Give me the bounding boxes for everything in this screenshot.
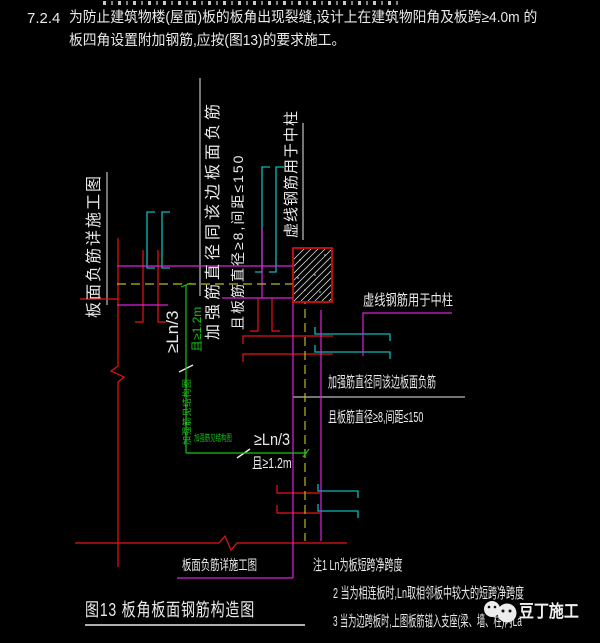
header-line-2: 板四角设置附加钢筋,应按(图13)的要求施工。 (69, 34, 345, 49)
section-number: 7.2.4 (27, 11, 60, 26)
structural-drawing (0, 0, 600, 643)
header-line-1: 为防止建筑物楼(屋面)板的板角出现裂缝,设计上在建筑物阳角及板跨≥4.0m 的 (69, 11, 537, 26)
clipped-text-fragment (103, 1, 398, 5)
label-dim-vertical-extra: 且≥1.2m (191, 307, 203, 352)
watermark-text: 豆丁施工 (519, 603, 579, 620)
label-bottom-caption: 板面负筋详施工图 (182, 558, 257, 572)
magenta-lines (117, 228, 452, 578)
label-reinforce-see-structural-vertical: 加强筋见结构图 (183, 378, 192, 445)
label-left-caption-vertical: 板面负筋详施工图 (87, 174, 103, 318)
watermark: 豆丁施工 (478, 594, 600, 634)
label-reinforce-see-structural: 加强筋见结构图 (194, 434, 232, 443)
label-reinforce-same-dia-vertical: 加强筋直径同该边板面负筋 (206, 100, 222, 340)
label-dashed-bar-mid-column: 虚线钢筋用于中柱 (363, 293, 453, 308)
cad-screenshot-page: { "colors": { "background": "#000000", "… (0, 0, 600, 643)
label-bar-dia-spacing-vertical: 且板筋直径≥8,间距≤150 (231, 154, 245, 330)
label-reinforce-same-dia: 加强筋直径同该边板面负筋 (328, 375, 436, 390)
figure-caption: 图13 板角板面钢筋构造图 (85, 601, 255, 619)
label-dim-horizontal-extra: 且≥1.2m (252, 456, 292, 471)
label-dim-horizontal-value: ≥Ln/3 (254, 431, 290, 448)
label-bar-dia-spacing: 且板筋直径≥8,间距≤150 (328, 410, 423, 425)
note-1: 注1 Ln为板短跨净跨度 (313, 558, 403, 573)
label-dashed-bar-mid-column-vertical: 虚线钢筋用于中柱 (284, 110, 299, 238)
label-dim-vertical-value: ≥Ln/3 (164, 311, 181, 353)
